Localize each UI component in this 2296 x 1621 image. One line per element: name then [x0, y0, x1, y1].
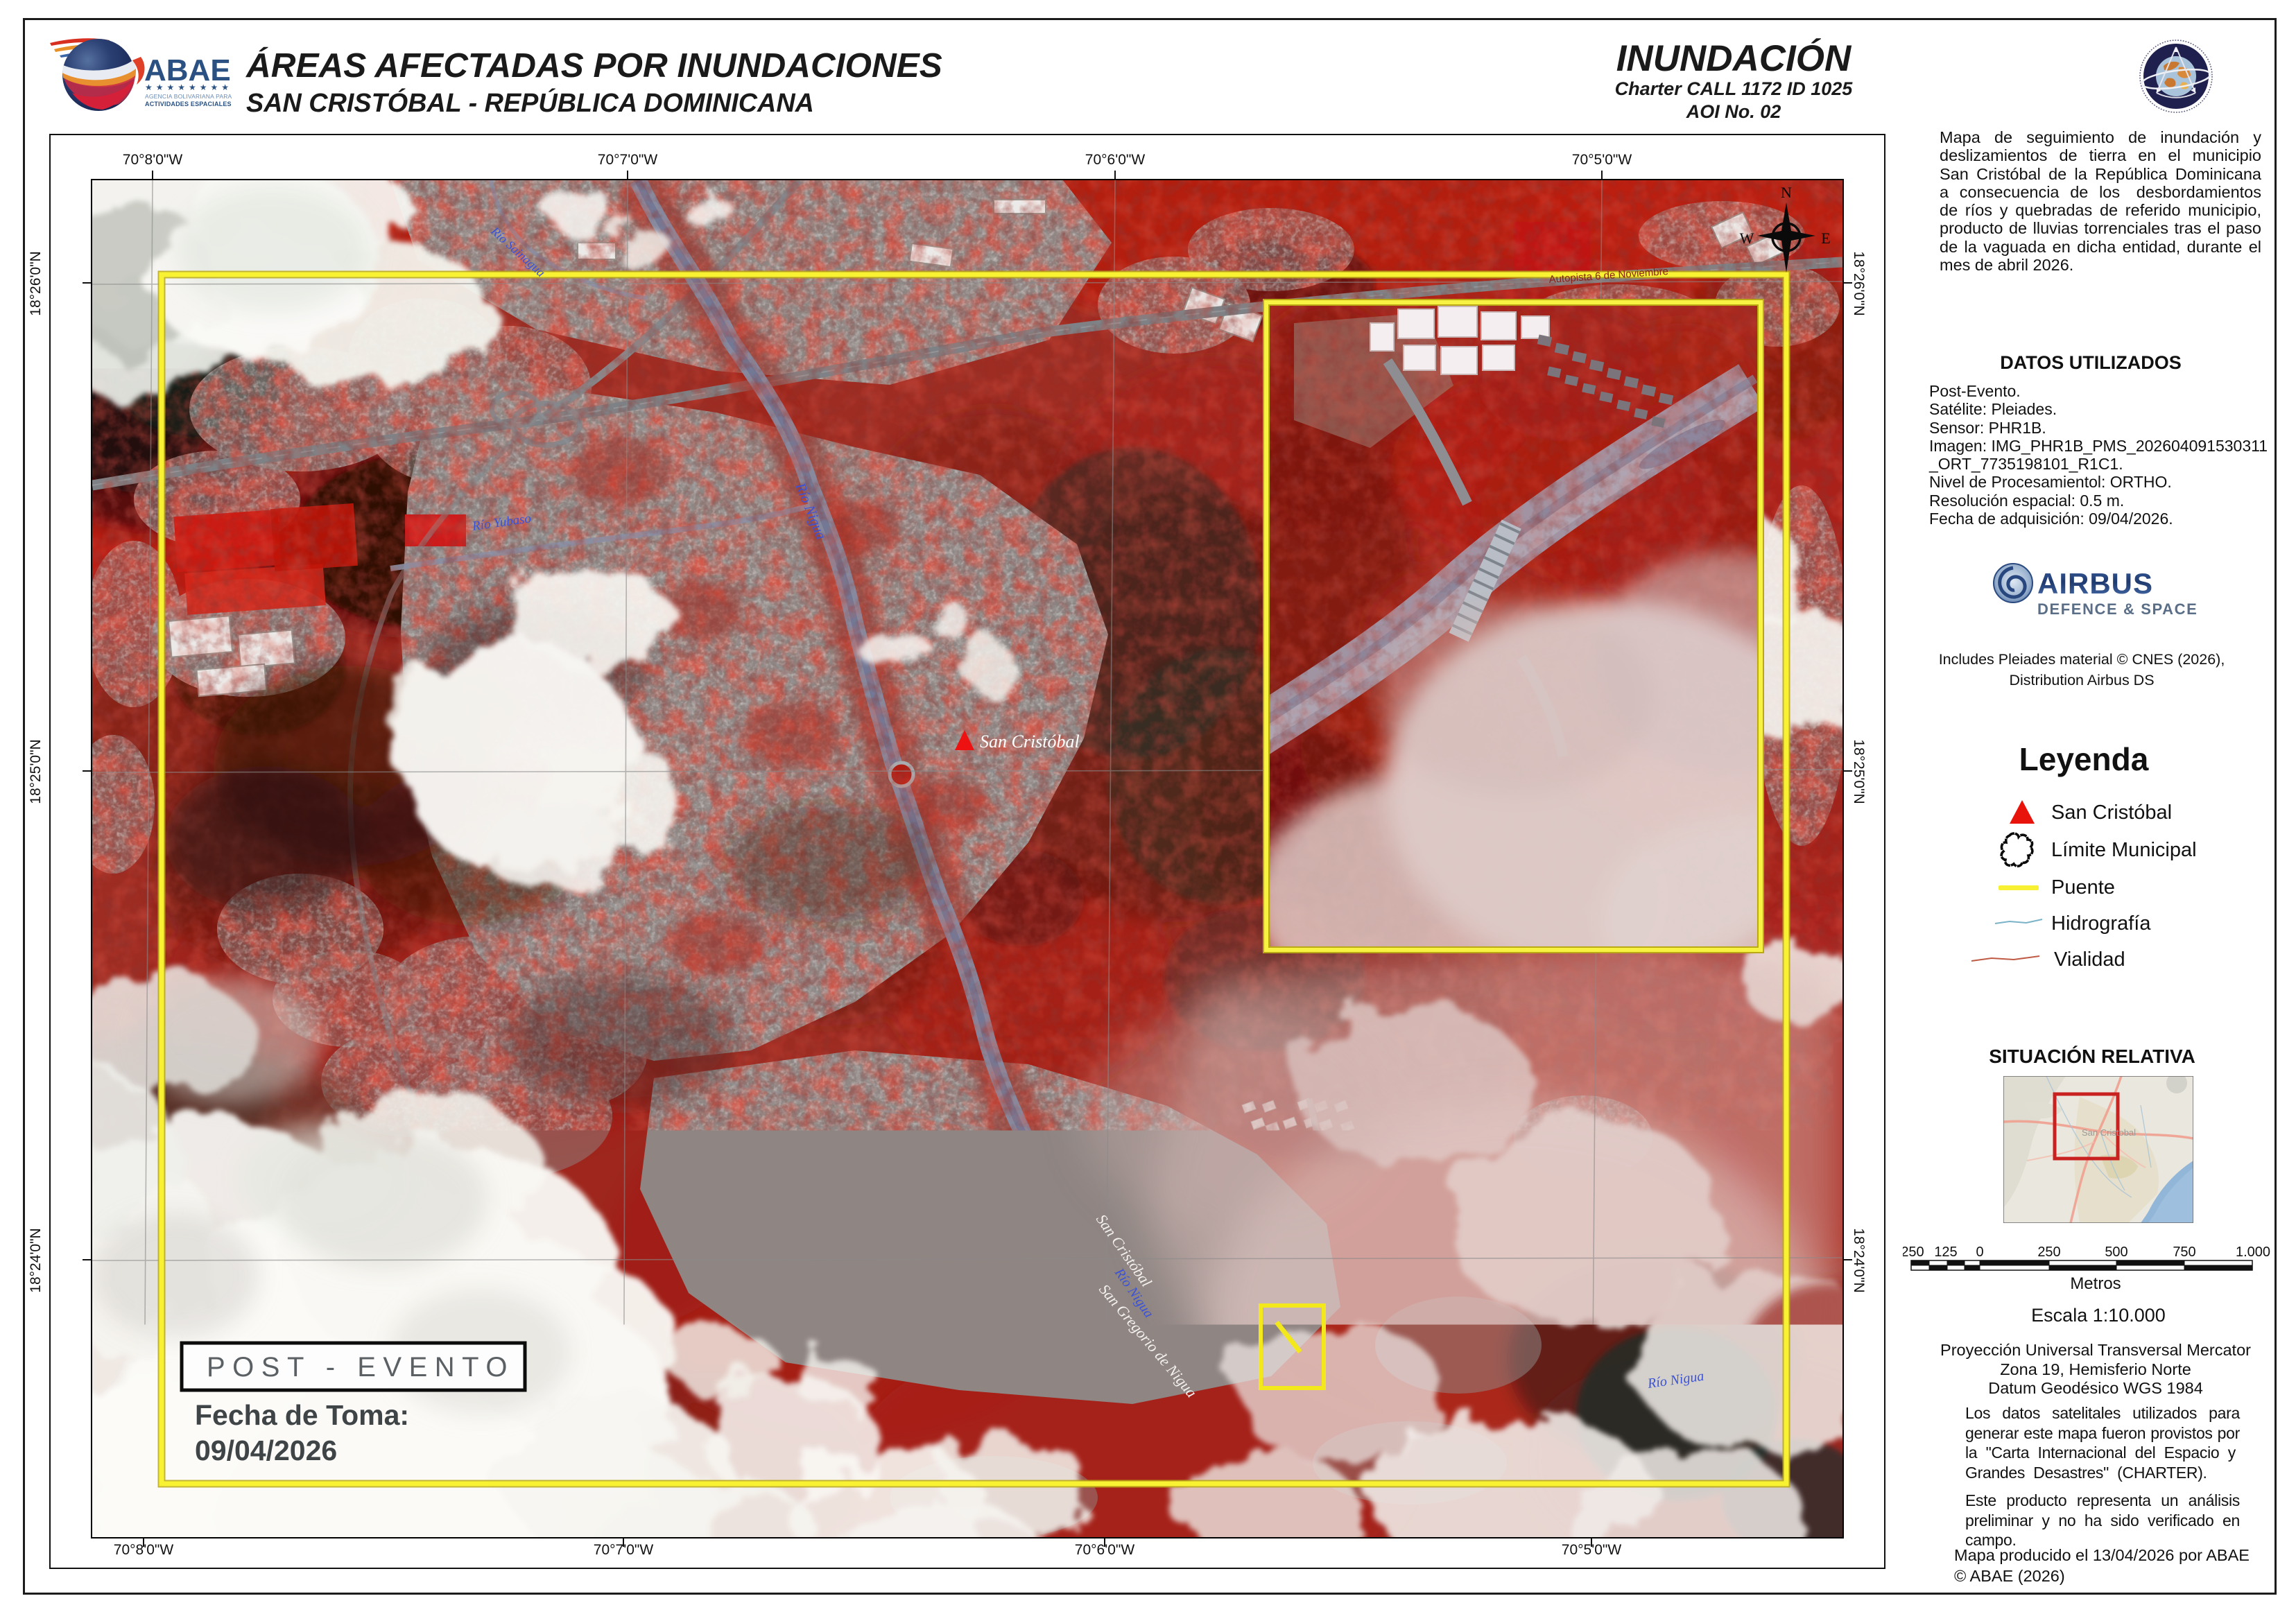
- svg-text:E: E: [1821, 229, 1830, 247]
- svg-text:250: 250: [1903, 1245, 1924, 1260]
- svg-text:Fecha de Toma:: Fecha de Toma:: [195, 1399, 409, 1431]
- svg-text:500: 500: [2105, 1245, 2127, 1260]
- svg-text:250: 250: [2037, 1245, 2060, 1260]
- svg-text:750: 750: [2173, 1245, 2195, 1260]
- svg-text:125: 125: [1934, 1245, 1957, 1260]
- svg-text:San Cristóbal: San Cristóbal: [980, 731, 1080, 752]
- svg-text:San Cristobal: San Cristobal: [2082, 1127, 2136, 1138]
- svg-text:DEFENCE & SPACE: DEFENCE & SPACE: [2037, 600, 2198, 618]
- svg-text:ACTIVIDADES ESPACIALES: ACTIVIDADES ESPACIALES: [145, 101, 232, 107]
- svg-text:09/04/2026: 09/04/2026: [195, 1434, 337, 1466]
- svg-text:AIRBUS: AIRBUS: [2037, 567, 2153, 600]
- svg-text:W: W: [1740, 229, 1754, 247]
- svg-text:POST - EVENTO: POST - EVENTO: [207, 1352, 515, 1382]
- svg-text:AGENCIA BOLIVARIANA PARA: AGENCIA BOLIVARIANA PARA: [145, 93, 232, 100]
- svg-text:★★★★★★★★: ★★★★★★★★: [145, 83, 232, 92]
- svg-text:N: N: [1781, 184, 1792, 201]
- svg-text:1.000: 1.000: [2236, 1245, 2270, 1260]
- svg-text:0: 0: [1976, 1245, 1983, 1260]
